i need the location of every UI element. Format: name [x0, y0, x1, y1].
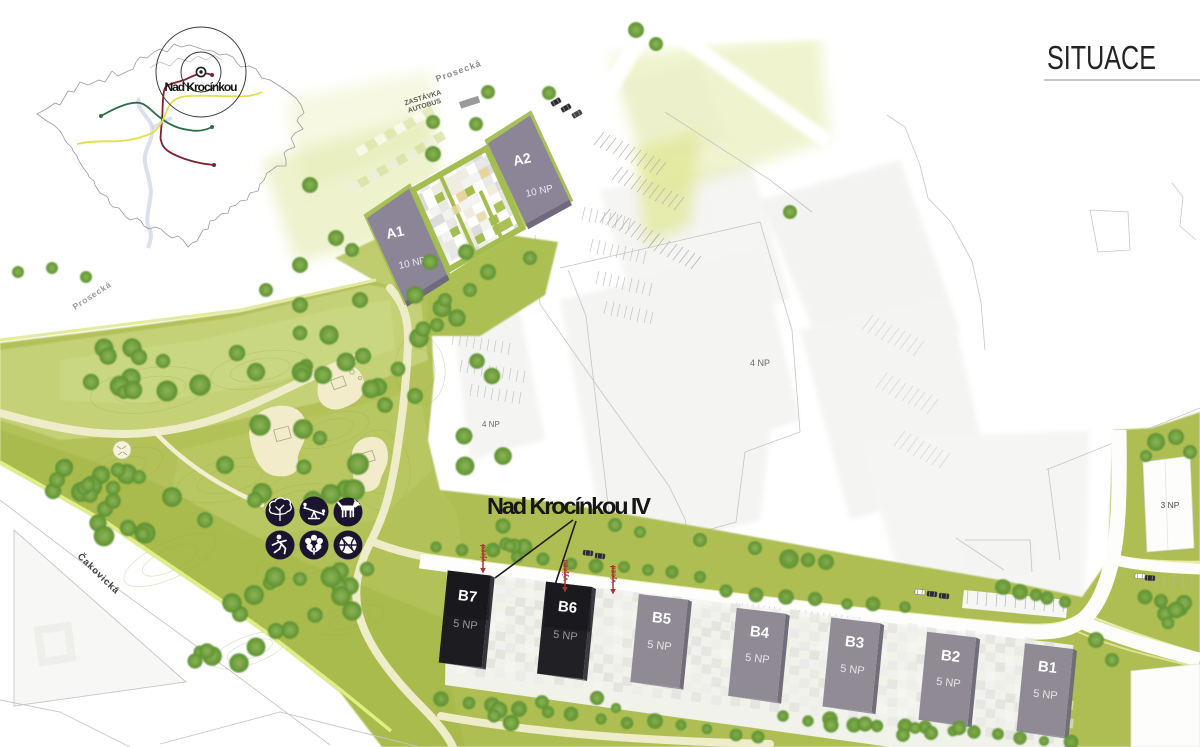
svg-text:B7: B7 — [457, 587, 478, 606]
svg-text:B4: B4 — [749, 623, 771, 642]
svg-text:SITUACE: SITUACE — [1047, 39, 1156, 76]
svg-text:3 NP: 3 NP — [1161, 500, 1180, 510]
svg-text:výjezd: výjezd — [563, 560, 570, 581]
svg-text:Nad Krocínkou IV: Nad Krocínkou IV — [487, 493, 651, 519]
svg-text:vjezd: vjezd — [611, 565, 618, 583]
svg-text:B1: B1 — [1037, 658, 1058, 677]
svg-text:Nad Krocínkou: Nad Krocínkou — [165, 80, 238, 94]
svg-text:B2: B2 — [940, 647, 961, 666]
svg-text:B3: B3 — [844, 633, 865, 652]
svg-text:B5: B5 — [651, 609, 672, 628]
svg-text:4 NP: 4 NP — [750, 358, 770, 368]
svg-text:4 NP: 4 NP — [482, 420, 500, 429]
svg-text:vjezd: vjezd — [481, 544, 488, 562]
svg-text:B6: B6 — [557, 598, 578, 617]
